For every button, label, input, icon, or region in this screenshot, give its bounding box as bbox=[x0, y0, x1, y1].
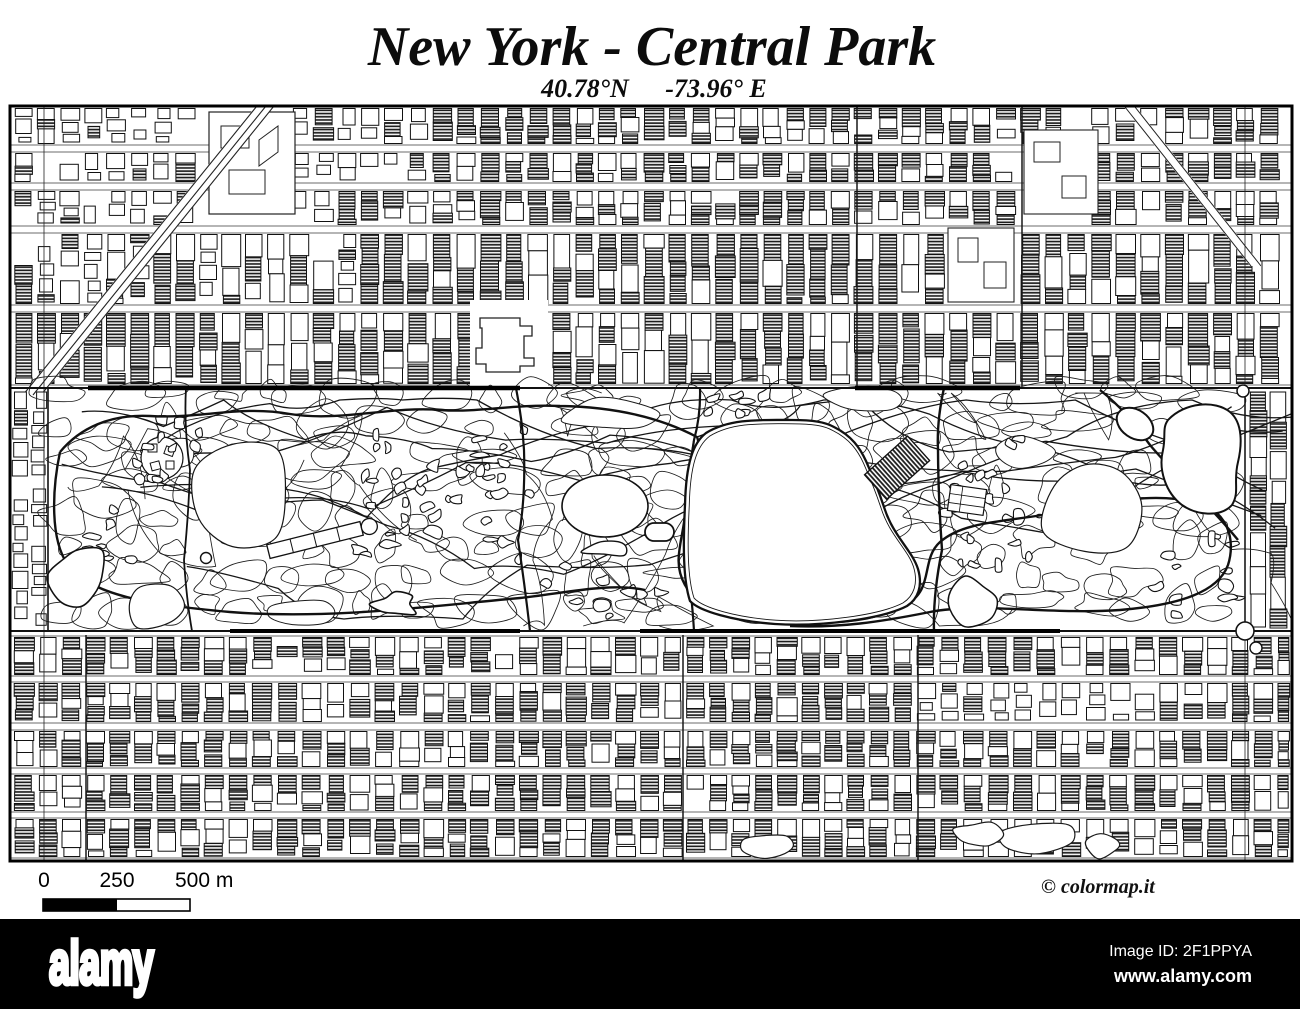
svg-text:www.alamy.com: www.alamy.com bbox=[1113, 966, 1252, 986]
svg-text:-73.96° E: -73.96° E bbox=[665, 74, 766, 103]
svg-text:40.78°N: 40.78°N bbox=[540, 74, 630, 103]
svg-text:© colormap.it: © colormap.it bbox=[1041, 876, 1156, 898]
svg-text:alamy: alamy bbox=[49, 929, 154, 998]
svg-text:Image ID: 2F1PPYA: Image ID: 2F1PPYA bbox=[1109, 943, 1252, 960]
svg-text:New York - Central Park: New York - Central Park bbox=[367, 16, 936, 78]
svg-text:250: 250 bbox=[99, 869, 134, 892]
svg-text:0: 0 bbox=[38, 869, 50, 892]
svg-text:500 m: 500 m bbox=[175, 869, 233, 892]
